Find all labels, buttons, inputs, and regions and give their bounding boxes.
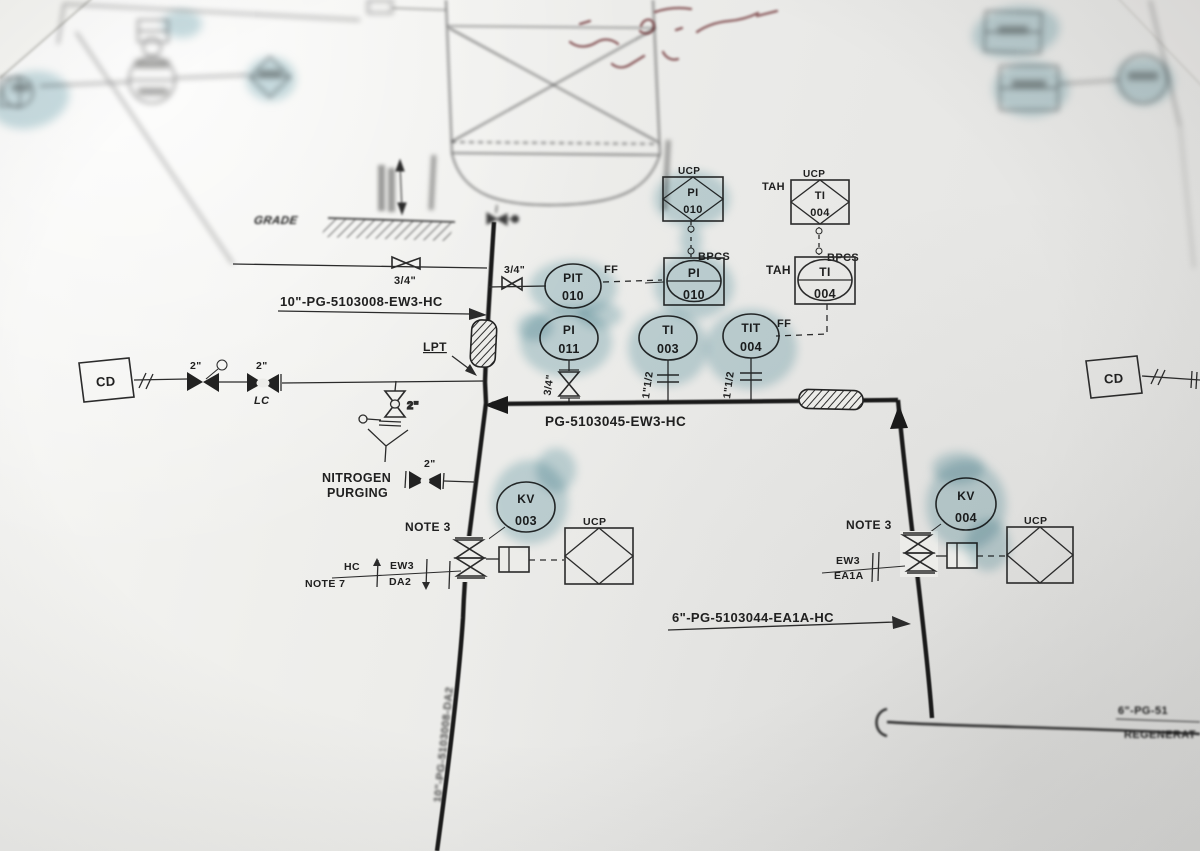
- lpt-spectacle-blind: [470, 319, 497, 367]
- tah-label-top: TAH: [762, 181, 785, 193]
- edge-pipe-label-bottom: REGENERAT: [1124, 729, 1196, 741]
- spec-ew3-left: EW3: [390, 560, 414, 572]
- ti004-num: 004: [814, 287, 836, 301]
- vessel: [392, 0, 671, 225]
- ucp-label-3: UCP: [583, 516, 606, 528]
- right-cd-line: CD: [1086, 356, 1200, 398]
- highlight-ti003: [628, 310, 708, 386]
- ti004-tag: TI: [819, 265, 830, 279]
- note7-label: NOTE 7: [305, 578, 345, 590]
- lpt-label: LPT: [423, 340, 447, 354]
- spec-hc: HC: [344, 561, 360, 573]
- pit-root-size: 3/4": [504, 264, 525, 276]
- branch-pipe-label-group: 6"-PG-5103044-EA1A-HC: [668, 610, 911, 630]
- cd-left-label: CD: [96, 374, 116, 390]
- flow-arrow-up: [890, 405, 908, 429]
- highlight-tit004: [705, 309, 797, 389]
- nitrogen-label-1: NITROGEN: [322, 471, 391, 485]
- edge-pipe-label-top: 6"-PG-51: [1118, 705, 1168, 717]
- ti004-ucp-tag: TI: [815, 190, 826, 202]
- nitrogen-label-2: PURGING: [327, 486, 388, 500]
- valve2-size: 2": [256, 360, 268, 372]
- header-pipe-label: 10"-PG-5103008-EW3-HC: [280, 294, 443, 309]
- pid-drawing-photo: GRADE 3/4" 10"-PG-5103008-EW3-HC CD 2": [0, 0, 1200, 851]
- lpt-blind-group: LPT: [423, 319, 497, 376]
- note3-left: NOTE 3: [405, 520, 451, 534]
- left-cd-line: CD 2" 2" LC: [79, 358, 484, 407]
- tah-label-mid: TAH: [766, 263, 791, 277]
- block-valve-1: [187, 372, 219, 392]
- main-pipe-label: PG-5103045-EW3-HC: [545, 414, 686, 429]
- spec-da2: DA2: [389, 576, 411, 588]
- pit-root-valve: [502, 277, 522, 290]
- lc-label: LC: [254, 395, 270, 407]
- nitrogen-valve-size: 2": [424, 458, 436, 470]
- note3-right: NOTE 3: [846, 518, 892, 532]
- ti004-ucp-num: 004: [810, 207, 830, 219]
- kv003-ucp-box: [565, 528, 633, 584]
- kv004-ucp-box: [1007, 527, 1073, 583]
- bottom-right-line: 6"-PG-51 REGENERAT: [877, 705, 1200, 741]
- grade-marker: GRADE: [253, 160, 455, 241]
- funnel: [368, 429, 408, 462]
- pi011-size: 3/4": [542, 374, 557, 397]
- highlight-pi010: [654, 253, 734, 319]
- hose-connection: [359, 415, 367, 423]
- line-break-ticks: [139, 373, 153, 389]
- spec-ea1a: EA1A: [834, 570, 864, 582]
- cd-right-label: CD: [1104, 371, 1124, 387]
- spec-break-ticks-right: [872, 552, 879, 582]
- nitrogen-purging-branch: NITROGEN PURGING 2": [322, 458, 474, 500]
- drain-branch: 2": [359, 381, 419, 462]
- loop-ti004: TAH TI 004 UCP BPCS TAH TI 004 FF: [762, 169, 859, 336]
- branch-pipe-label: 6"-PG-5103044-EA1A-HC: [672, 610, 834, 625]
- main-horizontal-pipe: PG-5103045-EW3-HC: [484, 389, 932, 718]
- line-blind: [799, 389, 863, 410]
- spec-ew3-right: EW3: [836, 555, 860, 567]
- drain-valve-size: 2": [407, 400, 419, 412]
- ucp-label-2: UCP: [803, 169, 825, 180]
- ground-hatch: [321, 219, 455, 241]
- grade-label: GRADE: [253, 215, 298, 227]
- ucp-label-4: UCP: [1024, 515, 1047, 527]
- header-valve-size: 3/4": [394, 275, 416, 287]
- highlighter-marks: [0, 0, 1174, 571]
- flow-arrow: [469, 308, 487, 320]
- left-spec-break: HC EW3 NOTE 7 DA2: [305, 558, 461, 590]
- header-line-group: 3/4" 10"-PG-5103008-EW3-HC: [233, 257, 487, 320]
- kv003-solenoid: [499, 547, 529, 572]
- pid-diagram: GRADE 3/4" 10"-PG-5103008-EW3-HC CD 2": [0, 0, 1200, 851]
- highlight-pi010-ucp: [654, 171, 730, 227]
- valve1-size: 2": [190, 360, 202, 372]
- dimension-arrow: [396, 160, 406, 214]
- valve-stem: [217, 360, 227, 370]
- label-arrow: [892, 616, 911, 629]
- pipe-end-cap: [877, 709, 888, 736]
- vessel-outlet-valve: [487, 213, 507, 225]
